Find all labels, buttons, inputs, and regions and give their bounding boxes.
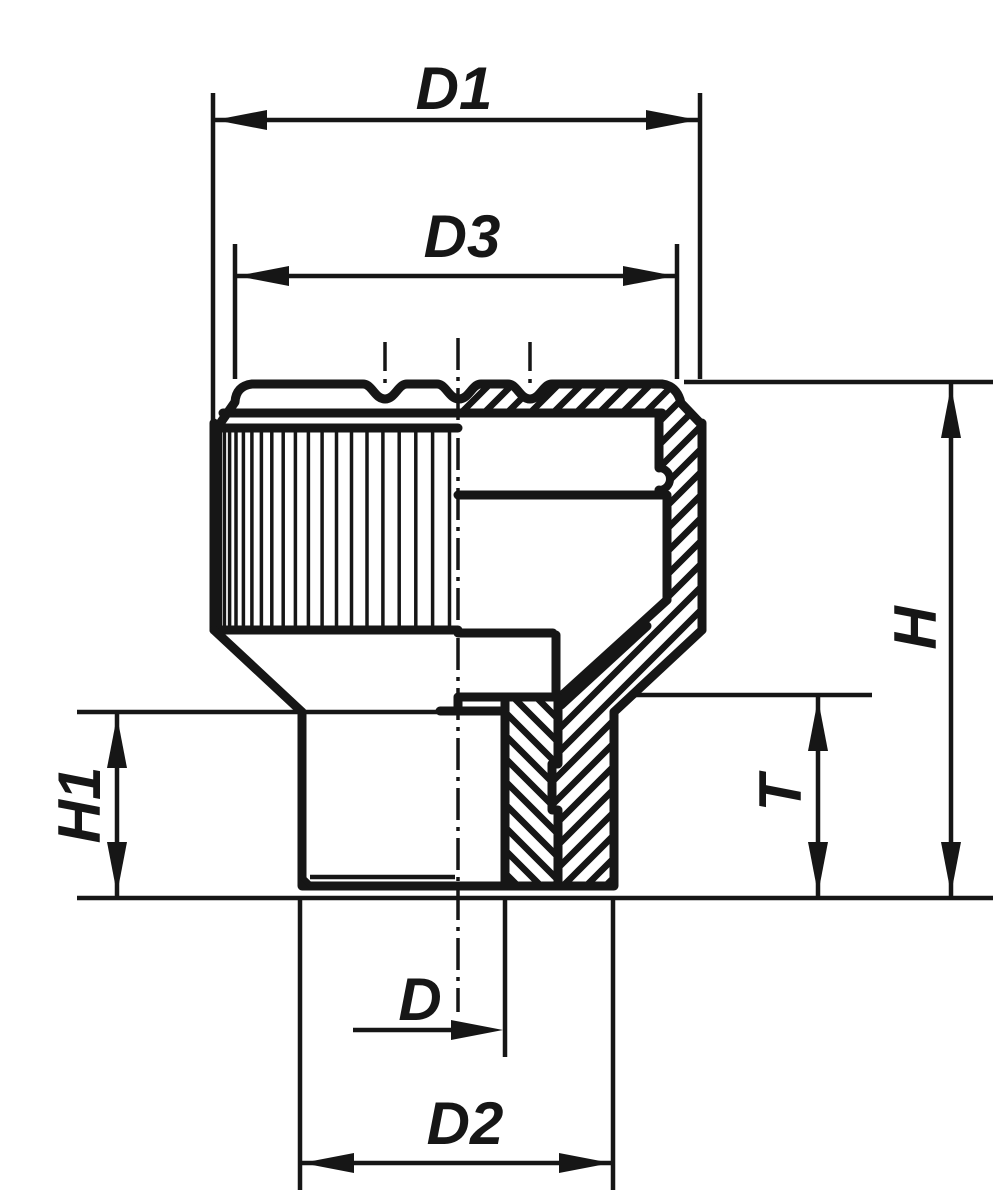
- knob-cross-section-drawing: D1 D3 H T H1 D: [0, 0, 1002, 1200]
- dim-label-d: D: [398, 966, 441, 1033]
- dim-label-h1: H1: [46, 767, 113, 844]
- technical-drawing-page: D1 D3 H T H1 D: [0, 0, 1002, 1200]
- dim-label-d3: D3: [424, 203, 501, 270]
- dim-label-d1: D1: [416, 55, 493, 122]
- drawing-background: [0, 0, 1002, 1200]
- dim-label-d2: D2: [427, 1090, 504, 1157]
- dim-label-t: T: [747, 770, 814, 811]
- dim-label-h: H: [882, 605, 949, 650]
